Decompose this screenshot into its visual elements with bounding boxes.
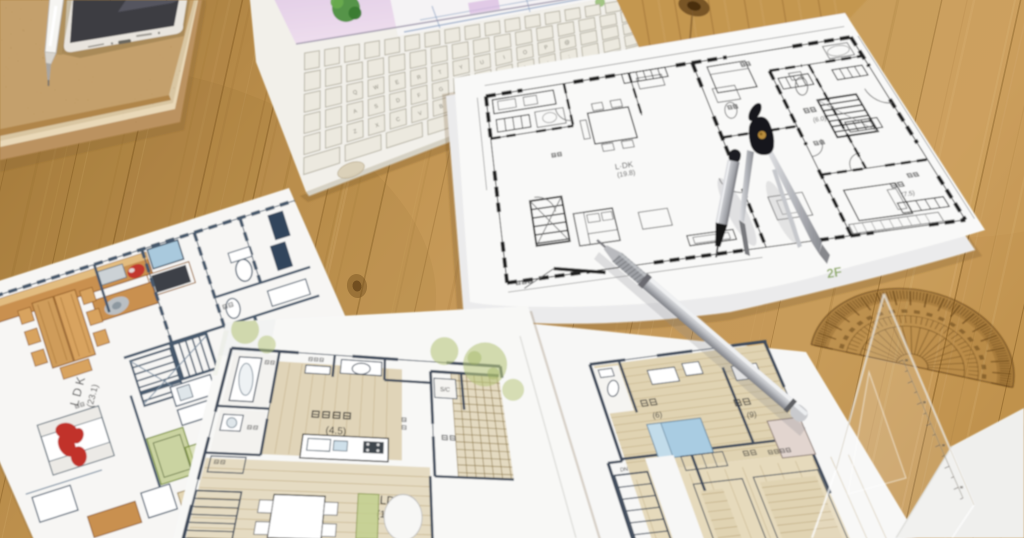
svg-text:(6): (6) (652, 410, 663, 420)
svg-text:DN: DN (620, 467, 629, 474)
svg-text:S/C: S/C (440, 387, 451, 394)
svg-text:2F: 2F (826, 264, 843, 281)
svg-text:(9): (9) (746, 410, 757, 420)
